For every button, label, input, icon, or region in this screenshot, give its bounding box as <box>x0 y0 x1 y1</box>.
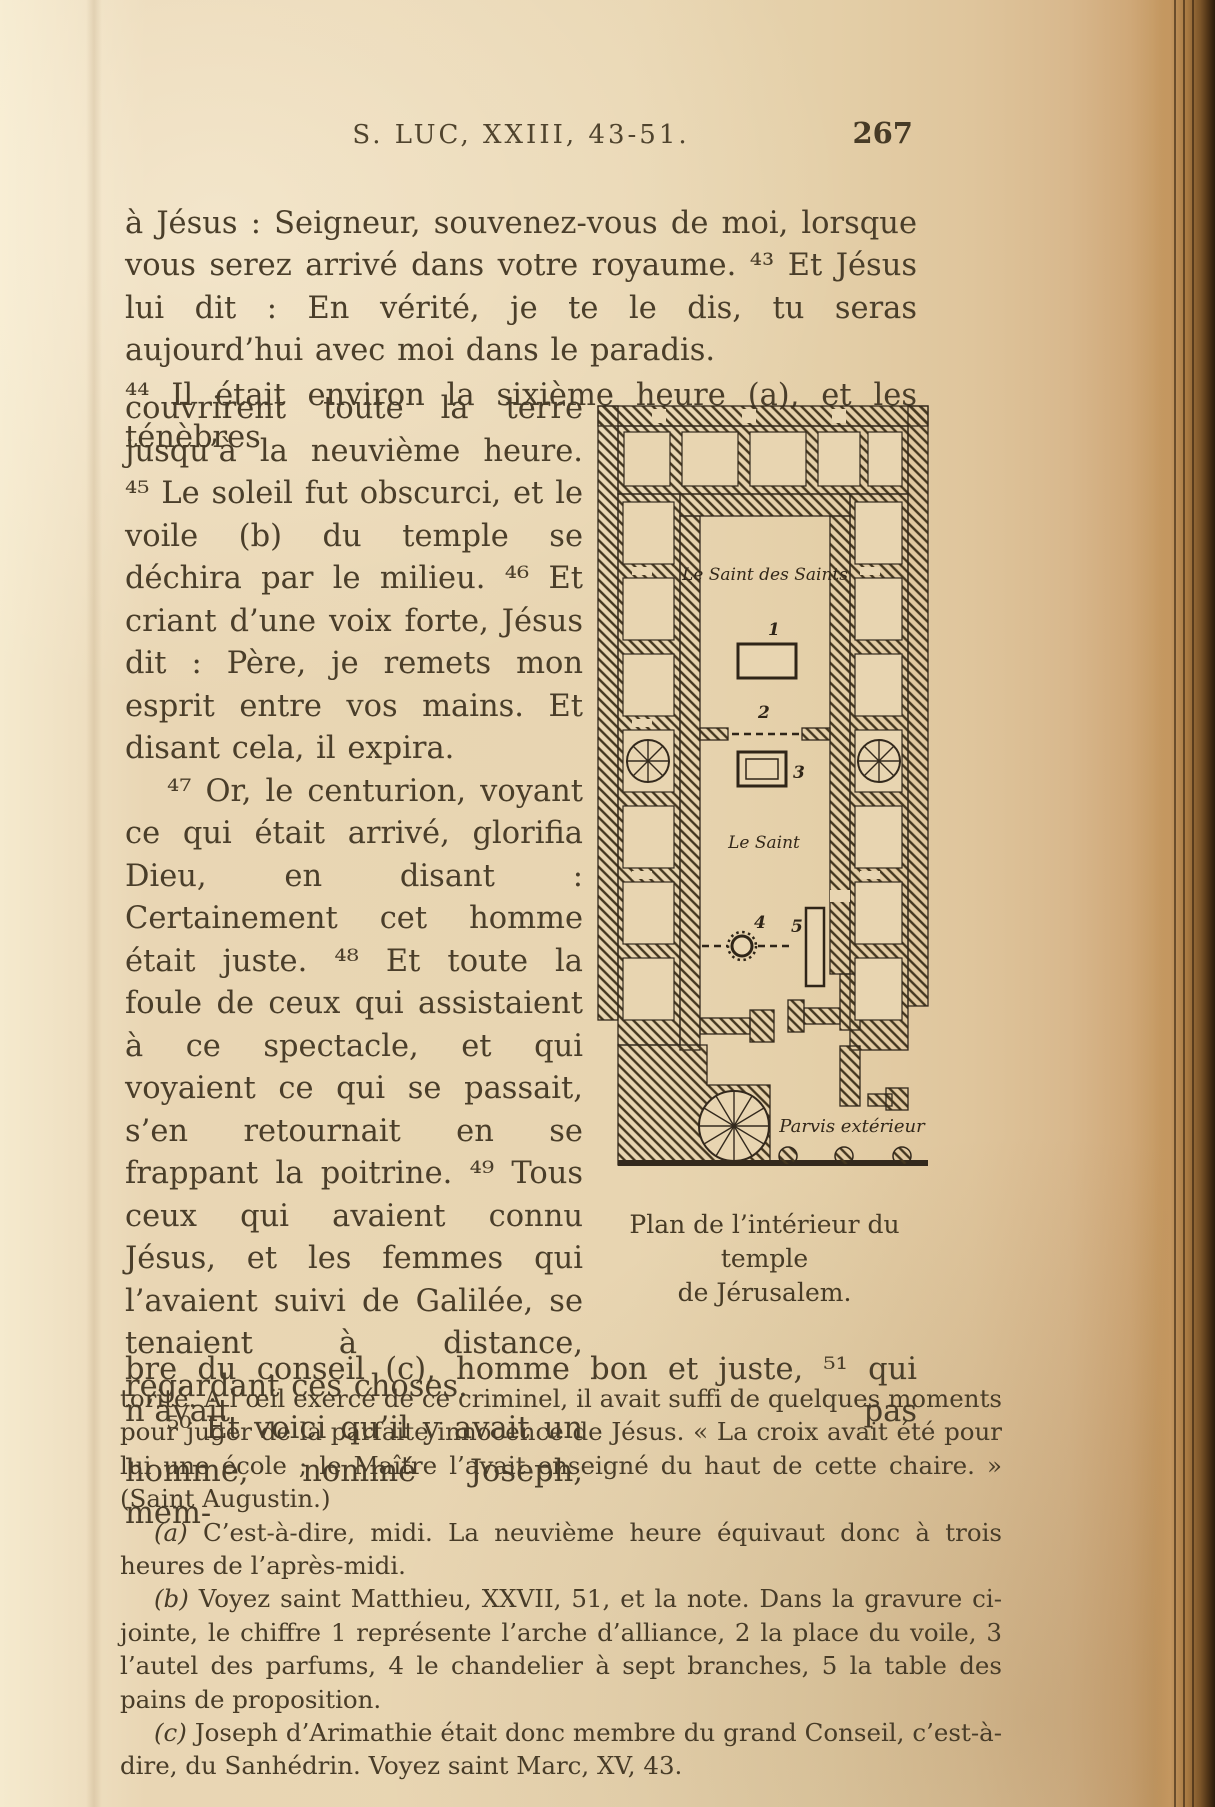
footnote-c-label: (c) <box>154 1718 187 1747</box>
label-holy-place: Le Saint <box>727 833 800 853</box>
footnote-b-text: Voyez saint Matthieu, XXVII, 51, et la n… <box>120 1584 1002 1713</box>
footnote-c-text: Joseph d’Arimathie était donc membre du … <box>120 1718 1002 1780</box>
page-number: 267 <box>852 116 913 150</box>
plan-number-veil: 2 <box>757 703 770 723</box>
plan-number-ark: 1 <box>768 620 780 640</box>
paragraph-verse-47: ⁴⁷ Or, le centurion, voyant ce qui était… <box>125 771 583 1409</box>
caption-line-1: Plan de l’intérieur du temple <box>629 1210 899 1273</box>
header-title: S. LUC, XXIII, 43-51. <box>125 120 917 150</box>
scanned-book-page: S. LUC, XXIII, 43-51. 267 à Jésus : Seig… <box>0 0 1215 1807</box>
plan-number-candlestick: 4 <box>754 913 766 933</box>
label-holy-of-holies: Le Saint des Saints <box>681 565 848 585</box>
label-outer-court: Parvis extérieur <box>778 1116 926 1137</box>
footnote-c: (c) Joseph d’Arimathie était donc membre… <box>120 1716 1002 1783</box>
paragraph-verse-43: à Jésus : Seigneur, souvenez-vous de moi… <box>125 203 917 373</box>
footnote-b-label: (b) <box>154 1584 189 1613</box>
temple-furniture <box>728 644 824 986</box>
footnotes-block: torité. A l’œil exercé de ce criminel, i… <box>120 1382 1002 1783</box>
footnote-b: (b) Voyez saint Matthieu, XXVII, 51, et … <box>120 1582 1002 1716</box>
page-fold-highlight <box>86 0 102 1807</box>
paragraph-verse-44-rest: couvrirent toute la terre jusqu’à la neu… <box>125 388 583 771</box>
plan-number-altar: 3 <box>793 763 805 783</box>
footnote-a-text: C’est-à-dire, midi. La neuvième heure éq… <box>120 1518 1002 1580</box>
plan-number-table: 5 <box>791 917 803 937</box>
running-header: S. LUC, XXIII, 43-51. 267 <box>125 120 917 160</box>
book-page-edges <box>1167 0 1201 1807</box>
footnote-a: (a) C’est-à-dire, midi. La neuvième heur… <box>120 1516 1002 1583</box>
caption-line-2: de Jérusalem. <box>678 1278 852 1307</box>
footnote-a-label: (a) <box>154 1518 188 1547</box>
figure-caption: Plan de l’intérieur du temple de Jérusal… <box>592 1208 937 1310</box>
courtyard-ground-line <box>618 1160 928 1166</box>
temple-plan-engraving: Le Saint des Saints 1 2 3 Le Saint 4 5 P… <box>592 390 937 1190</box>
footnote-continuation: torité. A l’œil exercé de ce criminel, i… <box>120 1382 1002 1516</box>
